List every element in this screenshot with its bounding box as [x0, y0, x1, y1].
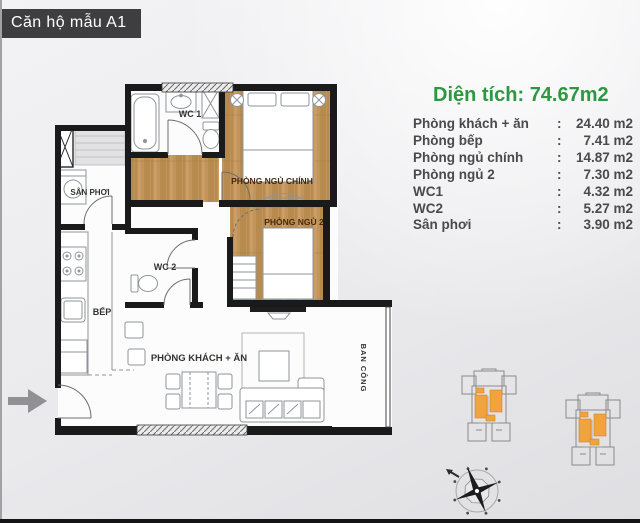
room-area: 7.30 m2 [569, 167, 633, 184]
living-label: PHÒNG KHÁCH + ĂN [151, 352, 247, 364]
area-row: WC2 : 5.27 m2 [413, 201, 633, 218]
colon: : [557, 150, 569, 167]
area-row: Phòng bếp : 7.41 m2 [413, 133, 633, 150]
kitchen-sink-icon [61, 298, 85, 322]
colon: : [557, 217, 569, 234]
area-row: WC1 : 4.32 m2 [413, 184, 633, 201]
page: WC 1 WC 2 SÂN PHƠI BẾP PHÒNG NGỦ CHÍNH P… [0, 0, 640, 523]
colon: : [557, 133, 569, 150]
bathtub-icon [131, 94, 159, 152]
room-area: 14.87 m2 [569, 150, 633, 167]
room-area: 4.32 m2 [569, 184, 633, 201]
room-name: Phòng ngủ 2 [413, 167, 557, 184]
toilet-wc2-icon [131, 275, 158, 292]
room-area: 5.27 m2 [569, 201, 633, 218]
linen-closet-icon [202, 89, 219, 118]
page-title: Căn hộ mẫu A1 [0, 9, 141, 38]
area-row: Phòng ngủ chính : 14.87 m2 [413, 150, 633, 167]
left-edge-border [0, 0, 2, 523]
colon: : [557, 184, 569, 201]
compass-rose-icon [443, 456, 510, 523]
floor-plan-canvas: WC 1 WC 2 SÂN PHƠI BẾP PHÒNG NGỦ CHÍNH P… [0, 0, 640, 523]
bep-label: BẾP [93, 307, 112, 317]
total-area-heading: Diện tích: 74.67m2 [413, 84, 633, 107]
sofa-icon [240, 388, 324, 422]
wc1-label: WC 1 [179, 109, 202, 119]
master-bedroom-label: PHÒNG NGỦ CHÍNH [231, 175, 313, 186]
room-name: WC2 [413, 201, 557, 218]
room-name: Phòng khách + ăn [413, 116, 557, 133]
area-row: Phòng khách + ăn : 24.40 m2 [413, 116, 633, 133]
area-row: Phòng ngủ 2 : 7.30 m2 [413, 167, 633, 184]
stove-icon [60, 247, 86, 281]
colon: : [557, 167, 569, 184]
toilet-wc1-icon [203, 122, 219, 149]
san-phoi-label: SÂN PHƠI [70, 188, 109, 197]
room-area: 24.40 m2 [569, 116, 633, 133]
wc2-label: WC 2 [154, 262, 177, 272]
room-area: 7.41 m2 [569, 133, 633, 150]
bedroom2-label: PHÒNG NGỦ 2 [264, 216, 324, 227]
room-area: 3.90 m2 [569, 217, 633, 234]
room-name: Phòng bếp [413, 133, 557, 150]
keyplan-2 [566, 393, 620, 465]
north-arrow-icon [446, 469, 459, 477]
room-name: Phòng ngủ chính [413, 150, 557, 167]
area-info-panel: Diện tích: 74.67m2 Phòng khách + ăn : 24… [413, 84, 633, 234]
total-area-value: 74.67m2 [530, 84, 609, 106]
room-name: Sân phơi [413, 217, 557, 234]
bottom-border [0, 519, 640, 523]
keyplan-1 [462, 369, 516, 441]
area-row: Sân phơi : 3.90 m2 [413, 217, 633, 234]
colon: : [557, 116, 569, 133]
entrance-arrow-icon [8, 389, 47, 413]
fridge-icon [60, 340, 87, 373]
balcony-window [386, 307, 390, 427]
room-name: WC1 [413, 184, 557, 201]
service-shaft [57, 127, 125, 167]
total-area-label: Diện tích: [433, 84, 524, 106]
washing-machine-icon [60, 170, 86, 204]
balcony-label: BAN CÔNG [359, 344, 368, 393]
colon: : [557, 201, 569, 218]
